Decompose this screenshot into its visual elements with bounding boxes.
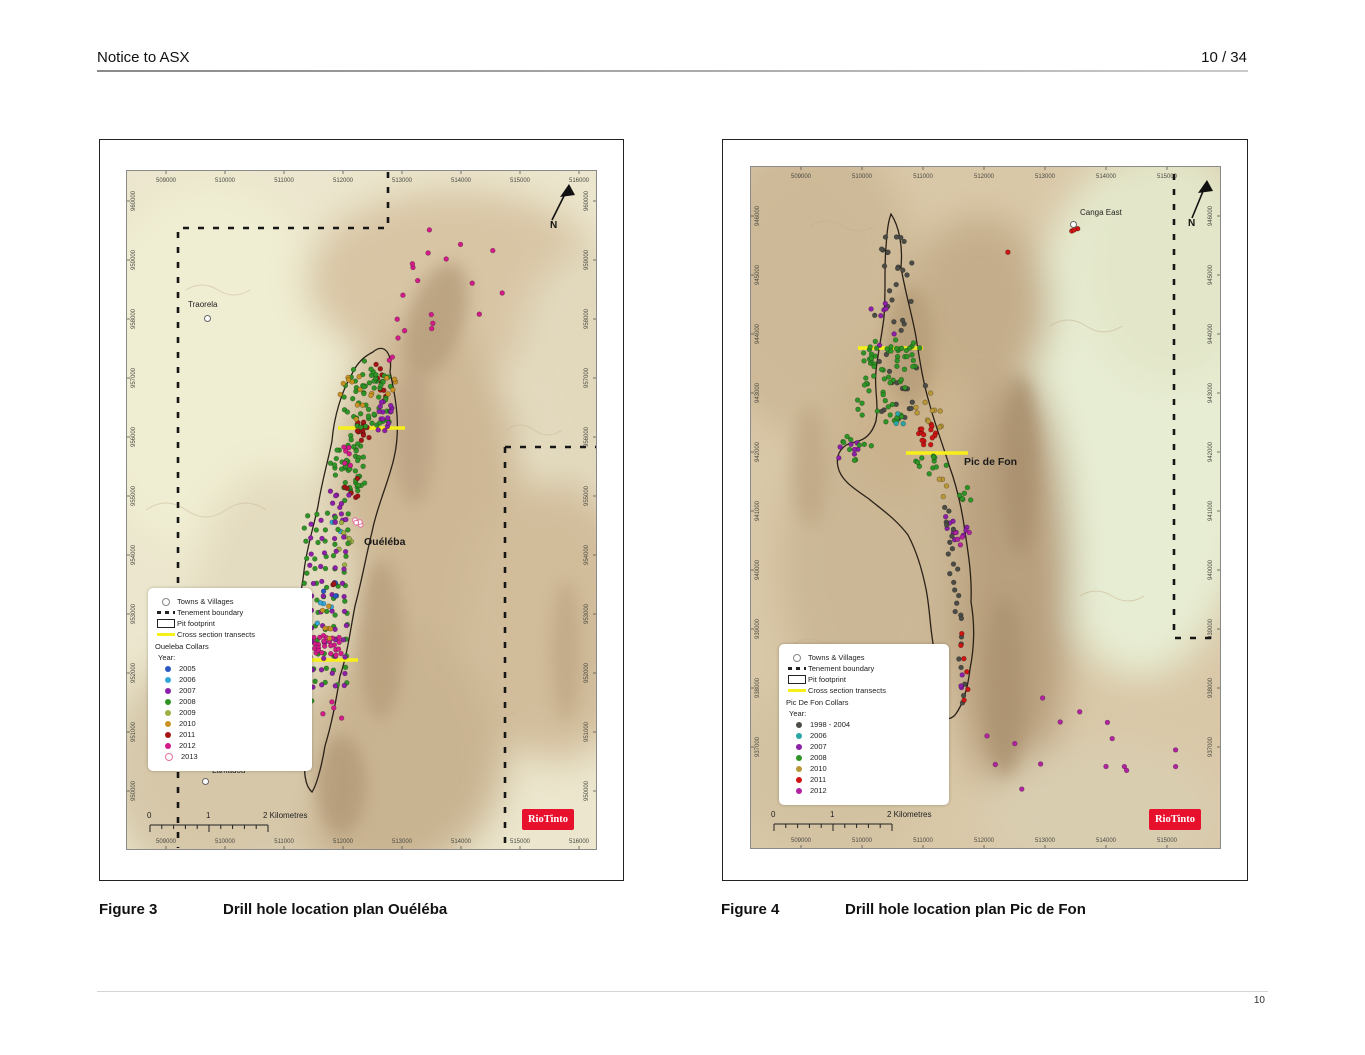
drill-hole-dot: [860, 413, 865, 418]
drill-hole-dot: [852, 452, 857, 457]
drill-hole-dot: [327, 636, 332, 641]
header-page-indicator: 10 / 34: [1201, 49, 1247, 66]
drill-hole-dot: [967, 530, 972, 535]
drill-hole-dot: [344, 623, 349, 628]
easting-label: 514000: [451, 839, 472, 845]
legend-item-label: Pit footprint: [177, 619, 215, 628]
northing-label: 943000: [1208, 382, 1214, 403]
drill-hole-dot: [966, 687, 971, 692]
drill-hole-dot: [369, 393, 374, 398]
drill-hole-dot: [911, 341, 916, 346]
drill-hole-dot: [923, 400, 928, 405]
drill-hole-dot: [311, 581, 316, 586]
drill-hole-dot: [893, 338, 898, 343]
north-label: N: [1188, 218, 1195, 229]
drill-hole-dot: [884, 306, 889, 311]
drill-hole-dot: [1173, 764, 1178, 769]
northing-label: 953000: [584, 603, 590, 624]
drill-hole-dot: [333, 520, 338, 525]
drill-hole-dot: [346, 541, 351, 546]
legend-year-label: 2012: [810, 786, 827, 795]
legend-collars-title: Oueleba Collars: [155, 642, 303, 651]
legend-rect-symbol-icon: [788, 675, 806, 684]
figure4-caption-label: Figure 4: [721, 901, 845, 918]
drill-hole-dot: [923, 383, 928, 388]
drill-hole-dot: [338, 392, 343, 397]
drill-hole-dot: [960, 673, 965, 678]
drill-hole-dot: [355, 488, 360, 493]
drill-hole-dot: [395, 317, 400, 322]
drill-hole-dot: [937, 425, 942, 430]
drill-hole-dot: [343, 549, 348, 554]
drill-hole-dot: [350, 396, 355, 401]
drill-hole-dot: [342, 567, 347, 572]
drill-hole-dot: [315, 621, 320, 626]
drill-hole-dot: [444, 257, 449, 262]
drill-hole-dot: [328, 643, 333, 648]
drill-hole-dot: [342, 461, 347, 466]
drill-hole-dot: [490, 248, 495, 253]
legend-year-item: 2011: [792, 775, 940, 784]
drill-hole-dot: [879, 367, 884, 372]
northing-label: 960000: [131, 190, 137, 211]
legend-year-label: 2010: [179, 719, 196, 728]
drill-hole-dot: [362, 359, 367, 364]
drill-hole-dot: [355, 458, 360, 463]
legend-year-label: 1998 - 2004: [810, 720, 850, 729]
legend-year-item: 2008: [161, 697, 303, 706]
drill-hole-dot: [914, 405, 919, 410]
drill-hole-dot: [318, 564, 323, 569]
drill-hole-dot: [343, 480, 348, 485]
drill-hole-dot: [379, 383, 384, 388]
legend-item: Pit footprint: [786, 675, 940, 684]
drill-hole-dot: [362, 391, 367, 396]
drill-hole-dot: [907, 346, 912, 351]
scale-one: 1: [206, 811, 210, 820]
easting-label: 510000: [215, 839, 236, 845]
drill-hole-dot: [319, 579, 324, 584]
drill-hole-dot: [871, 374, 876, 379]
drill-hole-dot: [322, 551, 327, 556]
drill-hole-dot: [909, 406, 914, 411]
drill-hole-dot: [872, 313, 877, 318]
northing-label: 957000: [131, 367, 137, 388]
scale-one: 1: [830, 810, 834, 819]
northing-label: 944000: [755, 323, 761, 344]
northing-label: 951000: [584, 721, 590, 742]
drill-hole-dot: [878, 313, 883, 318]
drill-hole-dot: [888, 413, 893, 418]
drill-hole-dot: [389, 409, 394, 414]
drill-hole-dot: [895, 411, 900, 416]
drill-hole-dot: [882, 377, 887, 382]
drill-hole-dot: [344, 554, 349, 559]
drill-hole-dot: [391, 387, 396, 392]
easting-label: 509000: [156, 178, 177, 184]
drill-hole-dot: [895, 364, 900, 369]
drill-hole-dot: [426, 251, 431, 256]
drill-hole-dot: [920, 438, 925, 443]
drill-hole-dot: [341, 535, 346, 540]
legend-year-label: 2005: [179, 664, 196, 673]
northing-label: 944000: [1208, 323, 1214, 344]
drill-hole-dot: [883, 235, 888, 240]
drill-hole-dot: [1006, 250, 1011, 255]
northing-label: 940000: [755, 559, 761, 580]
town-marker-icon: [1070, 221, 1077, 228]
northing-label: 955000: [584, 485, 590, 506]
northing-label: 941000: [1208, 500, 1214, 521]
drill-hole-dot: [938, 409, 943, 414]
drill-hole-dot: [894, 421, 899, 426]
drill-hole-dot: [892, 332, 897, 337]
drill-hole-dot: [355, 494, 360, 499]
riotinto-logo: RioTinto: [522, 809, 574, 830]
legend-year-dot-icon: [796, 755, 802, 761]
legend-year-dot-icon: [796, 777, 802, 783]
drill-hole-dot: [841, 440, 846, 445]
drill-hole-dot: [887, 369, 892, 374]
drill-hole-dot: [374, 372, 379, 377]
drill-hole-dot: [319, 518, 324, 523]
drill-hole-dot: [333, 542, 338, 547]
drill-hole-dot: [937, 477, 942, 482]
northing-label: 956000: [584, 426, 590, 447]
drill-hole-dot: [358, 411, 363, 416]
legend-year-item: 2009: [161, 708, 303, 717]
northing-label: 946000: [1208, 205, 1214, 226]
drill-hole-dot: [910, 364, 915, 369]
easting-label: 513000: [1035, 174, 1056, 180]
figure3-legend: Towns & VillagesTenement boundaryPit foo…: [148, 588, 312, 771]
drill-hole-dot: [961, 693, 966, 698]
drill-hole-dot: [361, 455, 366, 460]
northing-label: 941000: [755, 500, 761, 521]
legend-item-label: Pit footprint: [808, 675, 846, 684]
easting-label: 514000: [1096, 838, 1117, 844]
northing-label: 942000: [1208, 441, 1214, 462]
drill-hole-dot: [955, 537, 960, 542]
northing-label: 938000: [1208, 677, 1214, 698]
drill-hole-dot: [962, 656, 967, 661]
drill-hole-dot: [305, 513, 310, 518]
drill-hole-dot: [321, 589, 326, 594]
legend-item-label: Tenement boundary: [808, 664, 874, 673]
easting-label: 514000: [1096, 174, 1117, 180]
drill-hole-dot: [386, 421, 391, 426]
north-label: N: [550, 220, 557, 231]
drill-hole-dot: [341, 530, 346, 535]
drill-hole-dot: [905, 354, 910, 359]
easting-label: 509000: [156, 839, 177, 845]
drill-hole-dot: [363, 424, 368, 429]
drill-hole-dot: [1110, 736, 1115, 741]
legend-yellow-symbol-icon: [788, 689, 806, 692]
drill-hole-dot: [333, 473, 338, 478]
figure4-map: 5090005090005100005100005110005110005120…: [750, 166, 1221, 849]
drill-hole-dot: [919, 456, 924, 461]
drill-hole-dot: [951, 580, 956, 585]
drill-hole-dot: [921, 432, 926, 437]
drill-hole-dot: [385, 416, 390, 421]
legend-year-item: 2010: [161, 719, 303, 728]
drill-hole-dot: [321, 711, 326, 716]
legend-circle-symbol-icon: [793, 654, 801, 662]
legend-item: Cross section transects: [155, 630, 303, 639]
drill-hole-dot: [333, 594, 338, 599]
legend-item: Tenement boundary: [786, 664, 940, 673]
drill-hole-dot: [305, 571, 310, 576]
drill-hole-dot: [372, 412, 377, 417]
drill-hole-dot: [342, 485, 347, 490]
drill-hole-dot: [950, 546, 955, 551]
drill-hole-dot: [895, 266, 900, 271]
easting-label: 512000: [974, 174, 995, 180]
drill-hole-dot: [899, 346, 904, 351]
drill-hole-dot: [934, 465, 939, 470]
legend-item-label: Cross section transects: [177, 630, 255, 639]
drill-hole-dot: [872, 364, 877, 369]
northing-label: 957000: [584, 367, 590, 388]
drill-hole-dot: [953, 609, 958, 614]
northing-label: 937000: [755, 736, 761, 757]
northing-label: 937000: [1208, 736, 1214, 757]
drill-hole-dot: [863, 376, 868, 381]
legend-year-title: Year:: [789, 709, 940, 718]
drill-hole-dot: [900, 318, 905, 323]
drill-hole-dot: [928, 391, 933, 396]
drill-hole-dot: [318, 600, 323, 605]
drill-hole-dot: [902, 367, 907, 372]
northing-label: 951000: [131, 721, 137, 742]
drill-hole-dot: [429, 312, 434, 317]
northing-label: 956000: [131, 426, 137, 447]
northing-label: 958000: [584, 308, 590, 329]
drill-hole-dot: [349, 437, 354, 442]
drill-hole-dot: [330, 671, 335, 676]
drill-hole-dot: [947, 509, 952, 514]
town-label-traorela: Traorela: [188, 300, 218, 309]
drill-hole-dot: [388, 403, 393, 408]
drill-hole-dot: [312, 635, 317, 640]
drill-hole-dot: [337, 635, 342, 640]
drill-hole-dot: [390, 355, 395, 360]
drill-hole-dot: [346, 378, 351, 383]
drill-hole-dot: [380, 417, 385, 422]
drill-hole-dot: [302, 581, 307, 586]
drill-hole-dot: [909, 299, 914, 304]
northing-label: 945000: [755, 264, 761, 285]
drill-hole-dot: [323, 528, 328, 533]
drill-hole-dot: [333, 684, 338, 689]
drill-hole-dot: [328, 651, 333, 656]
drill-hole-dot: [867, 388, 872, 393]
drill-hole-dot: [458, 242, 463, 247]
drill-hole-dot: [320, 608, 325, 613]
easting-label: 515000: [510, 178, 531, 184]
drill-hole-dot: [930, 408, 935, 413]
figure3-frame: 5090005090005100005100005110005110005120…: [99, 139, 624, 881]
northing-label: 959000: [131, 249, 137, 270]
drill-hole-dot: [333, 515, 338, 520]
drill-hole-dot: [1058, 720, 1063, 725]
drill-hole-dot: [943, 514, 948, 519]
legend-year-dot-icon: [165, 743, 171, 749]
northing-label: 955000: [131, 485, 137, 506]
legend-year-label: 2013: [181, 752, 198, 761]
drill-hole-dot: [960, 535, 965, 540]
drill-hole-dot: [860, 401, 865, 406]
legend-year-item: 2007: [792, 742, 940, 751]
drill-hole-dot: [946, 552, 951, 557]
drill-hole-dot: [336, 647, 341, 652]
drill-hole-dot: [845, 434, 850, 439]
easting-label: 509000: [791, 838, 812, 844]
legend-item-label: Towns & Villages: [808, 653, 865, 662]
drill-hole-dot: [903, 385, 908, 390]
legend-year-dot-icon: [796, 744, 802, 750]
drill-hole-dot: [1104, 764, 1109, 769]
drill-hole-dot: [888, 380, 893, 385]
drill-hole-dot: [355, 476, 360, 481]
drill-hole-dot: [357, 374, 362, 379]
drill-hole-dot: [402, 328, 407, 333]
legend-year-dot-icon: [165, 677, 171, 683]
drill-hole-dot: [343, 449, 348, 454]
drill-hole-dot: [883, 398, 888, 403]
drill-hole-dot: [944, 463, 949, 468]
drill-hole-dot: [331, 706, 336, 711]
easting-label: 510000: [852, 838, 873, 844]
drill-hole-dot: [324, 609, 329, 614]
drill-hole-dot: [339, 520, 344, 525]
northing-label: 959000: [584, 249, 590, 270]
drill-hole-dot: [956, 593, 961, 598]
legend-year-dot-icon: [165, 732, 171, 738]
drill-hole-dot: [962, 491, 967, 496]
legend-yellow-symbol-icon: [157, 633, 175, 636]
drill-hole-dot: [900, 268, 905, 273]
drill-hole-dot: [339, 716, 344, 721]
drill-hole-dot: [315, 512, 320, 517]
drill-hole-dot: [346, 512, 351, 517]
drill-hole-dot: [926, 419, 931, 424]
easting-label: 512000: [333, 839, 354, 845]
drill-hole-dot: [951, 527, 956, 532]
easting-label: 511000: [274, 839, 294, 845]
drill-hole-dot: [910, 400, 915, 405]
northing-label: 943000: [755, 382, 761, 403]
northing-label: 954000: [131, 544, 137, 565]
legend-year-label: 2008: [179, 697, 196, 706]
drill-hole-dot: [964, 669, 969, 674]
drill-hole-dot: [1072, 228, 1077, 233]
drill-hole-dot: [874, 346, 879, 351]
drill-hole-dot: [321, 594, 326, 599]
drill-hole-dot: [347, 493, 352, 498]
drill-hole-dot: [320, 536, 325, 541]
legend-dash-symbol-icon: [157, 611, 175, 614]
drill-hole-dot: [415, 278, 420, 283]
drill-hole-dot: [500, 291, 505, 296]
easting-label: 513000: [392, 178, 413, 184]
drill-hole-dot: [929, 427, 934, 432]
drill-hole-dot: [942, 505, 947, 510]
drill-hole-dot: [343, 655, 348, 660]
drill-hole-dot: [902, 239, 907, 244]
northing-label: 952000: [131, 662, 137, 683]
drill-hole-dot: [887, 288, 892, 293]
drill-hole-dot: [883, 301, 888, 306]
easting-label: 511000: [913, 174, 933, 180]
scale-kilometres: 2 Kilometres: [263, 811, 307, 820]
drill-hole-dot: [339, 467, 344, 472]
drill-hole-dot: [1077, 709, 1082, 714]
drill-hole-dot: [359, 438, 364, 443]
drill-hole-dot: [358, 387, 363, 392]
easting-label: 511000: [274, 178, 294, 184]
northing-label: 939000: [1208, 618, 1214, 639]
figure3-map: 5090005090005100005100005110005110005120…: [126, 170, 597, 850]
easting-label: 513000: [392, 839, 413, 845]
drill-hole-dot: [330, 700, 335, 705]
figure4-caption-text: Drill hole location plan Pic de Fon: [845, 901, 1086, 918]
drill-hole-dot: [930, 435, 935, 440]
northing-label: 953000: [131, 603, 137, 624]
drill-hole-dot: [361, 464, 366, 469]
footer-rule: [97, 991, 1268, 992]
drill-hole-dot: [342, 594, 347, 599]
legend-year-label: 2012: [179, 741, 196, 750]
drill-hole-dot: [879, 409, 884, 414]
easting-label: 516000: [569, 839, 590, 845]
legend-year-dot-icon: [796, 766, 802, 772]
drill-hole-dot: [909, 261, 914, 266]
drill-hole-dot: [959, 616, 964, 621]
drill-hole-dot: [353, 469, 358, 474]
riotinto-logo: RioTinto: [1149, 809, 1201, 830]
legend-year-label: 2007: [179, 686, 196, 695]
legend-circle-symbol-icon: [162, 598, 170, 606]
drill-hole-dot: [351, 367, 356, 372]
drill-hole-dot: [348, 463, 353, 468]
drill-hole-dot: [342, 609, 347, 614]
drill-hole-dot: [302, 526, 307, 531]
legend-year-dot-icon: [796, 722, 802, 728]
drill-hole-dot: [324, 666, 329, 671]
drill-hole-dot: [323, 626, 328, 631]
drill-hole-dot: [885, 346, 890, 351]
drill-hole-dot: [862, 359, 867, 364]
drill-hole-dot: [881, 392, 886, 397]
drill-hole-dot: [1105, 720, 1110, 725]
drill-hole-dot: [1173, 748, 1178, 753]
drill-hole-dot: [857, 443, 862, 448]
deposit-label-pic-de-fon: Pic de Fon: [964, 456, 1017, 468]
drill-hole-dot: [899, 377, 904, 382]
document-page: Notice to ASX 10 / 34: [0, 0, 1365, 1055]
legend-rect-symbol-icon: [157, 619, 175, 628]
northing-label: 952000: [584, 662, 590, 683]
drill-hole-dot: [331, 553, 336, 558]
drill-hole-dot: [951, 562, 956, 567]
legend-year-dot-icon: [165, 753, 173, 761]
drill-hole-dot: [959, 643, 964, 648]
drill-hole-dot: [917, 346, 922, 351]
scale-zero: 0: [147, 811, 151, 820]
drill-hole-dot: [1019, 787, 1024, 792]
